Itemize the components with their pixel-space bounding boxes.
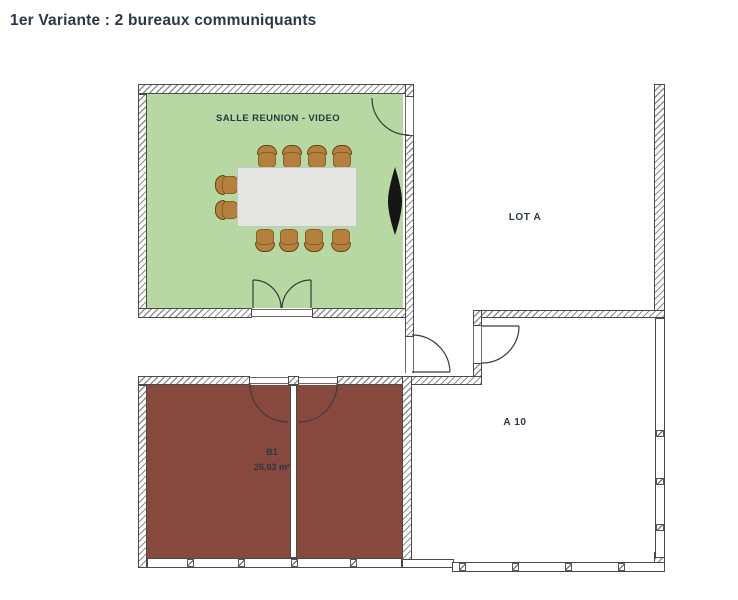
wall [312,308,414,318]
door-opening [299,377,337,384]
window-mullion [459,563,466,571]
room-label-meeting: SALLE REUNION - VIDEO [197,113,359,124]
window-mullion [618,563,625,571]
wall [138,84,414,94]
window-wall [147,558,402,568]
door-opening [250,377,288,384]
window-mullion [238,559,245,567]
door-opening [252,309,312,317]
wall [405,135,414,337]
chair-icon [256,145,278,167]
window-wall [452,562,665,572]
window-mullion [512,563,519,571]
wall [138,385,147,568]
floor-plan: 1er Variante : 2 bureaux communiquants [0,0,738,600]
conference-table [237,167,357,227]
window-mullion [656,524,664,531]
wall [288,376,299,385]
page-title: 1er Variante : 2 bureaux communiquants [10,12,317,30]
chair-icon [254,230,276,252]
wall [405,84,414,97]
room-label-a10: A 10 [483,417,547,428]
chair-icon [215,174,237,196]
window-mullion [565,563,572,571]
window-mullion [187,559,194,567]
door-opening [405,97,414,135]
window-mullion [291,559,298,567]
chair-icon [330,230,352,252]
wall [138,94,147,318]
wall [402,376,412,568]
room-area-b1: 26,03 m² [232,460,312,475]
office-b1-right-floor [297,385,402,558]
door-opening [405,337,414,373]
window-wall [655,318,665,558]
room-name-b1: B1 [232,445,312,460]
door-opening [473,326,482,363]
wall [654,84,665,318]
wall [473,310,665,318]
window-mullion [656,430,664,437]
wall [138,376,250,385]
chair-icon [278,230,300,252]
chair-icon [306,145,328,167]
chair-icon [281,145,303,167]
wall [138,308,252,318]
window-mullion [656,478,664,485]
window-mullion [350,559,357,567]
chair-icon [331,145,353,167]
room-label-b1: B1 26,03 m² [232,445,312,475]
room-label-lot-a: LOT A [493,212,557,223]
chair-icon [215,199,237,221]
door-swing-arc [412,335,450,372]
door-swing-arc [482,326,519,363]
wall [473,310,482,326]
chair-icon [303,230,325,252]
window-wall [402,559,454,568]
